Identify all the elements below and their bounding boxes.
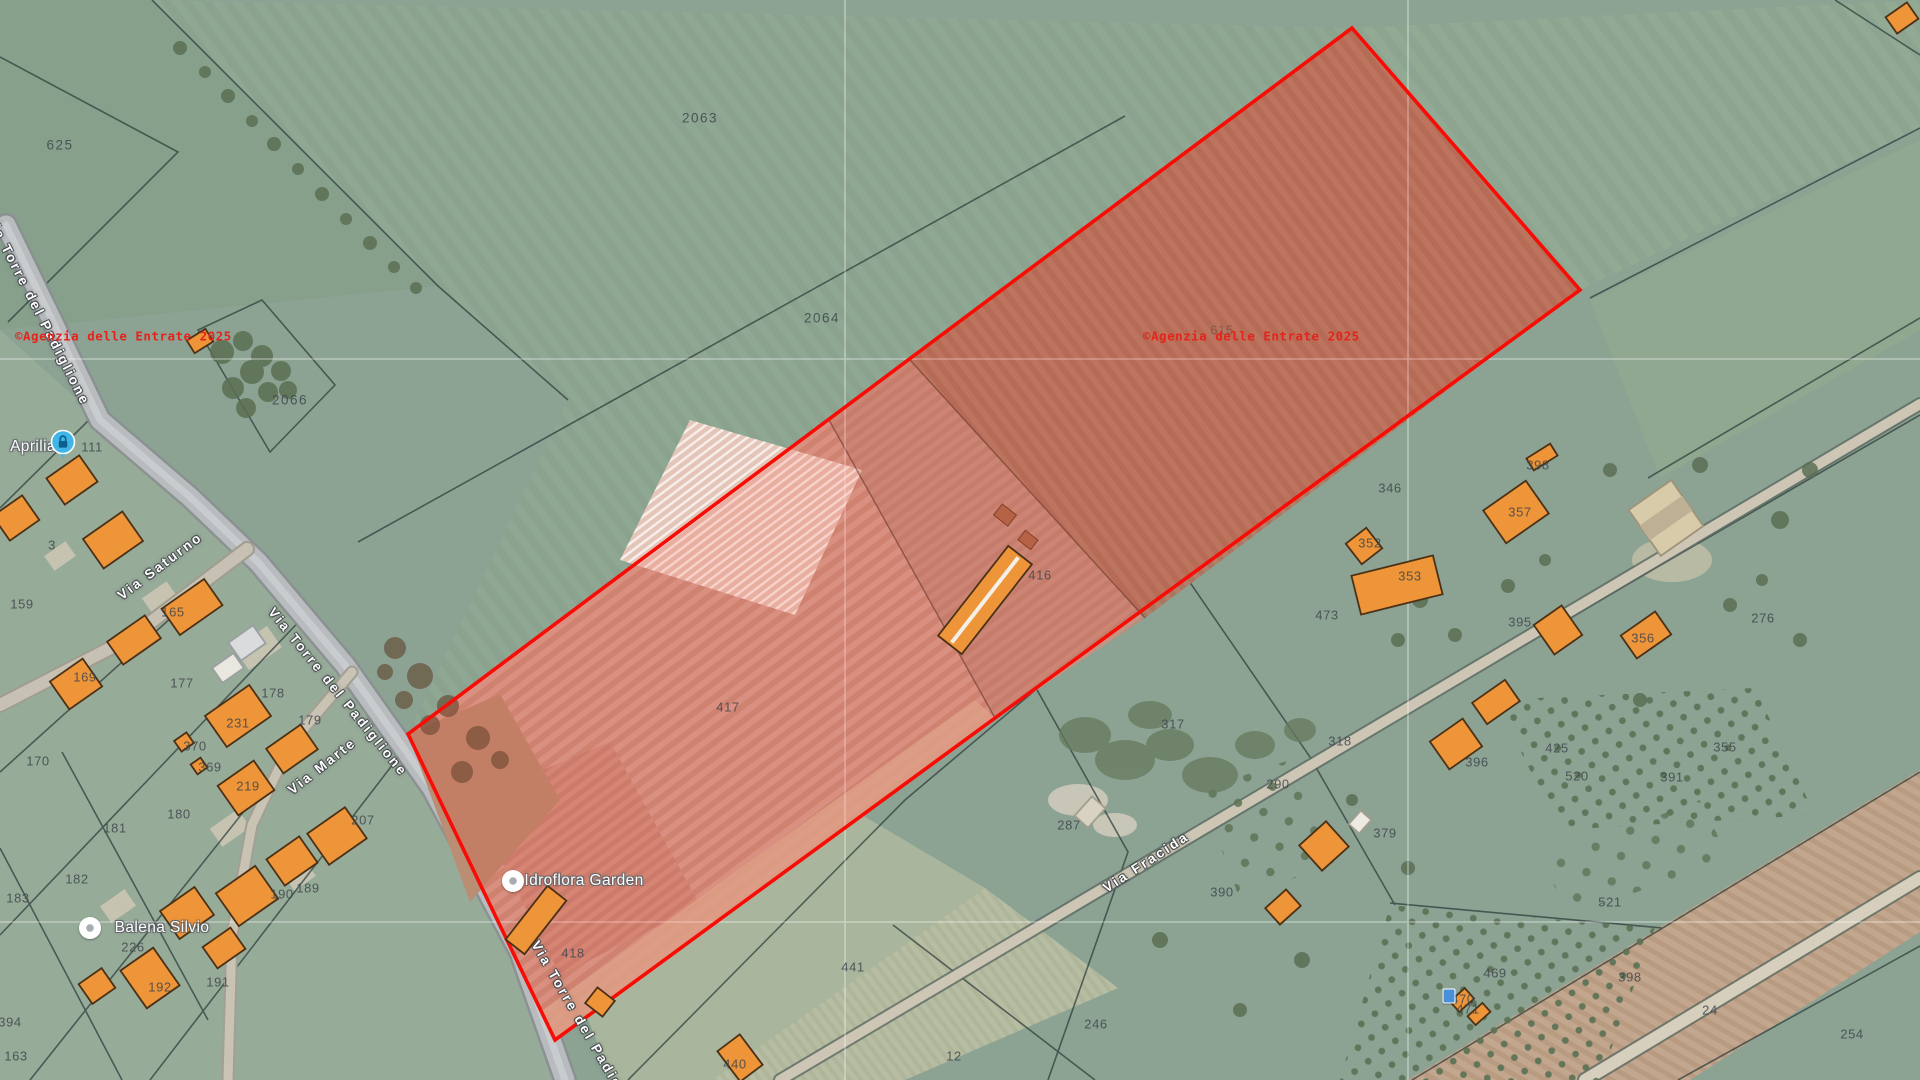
satellite-map-canvas[interactable]: 6252063206420666151113159165169170177178…	[0, 0, 1920, 1080]
copyright-watermark: ©Agenzia delle Entrate 2025	[1143, 329, 1360, 344]
poi-marker[interactable]	[79, 917, 101, 939]
poi-marker-small[interactable]	[1443, 989, 1456, 1004]
lock-icon	[50, 429, 77, 460]
poi-marker[interactable]	[502, 870, 524, 892]
map-base-layer	[0, 0, 1920, 1080]
saved-place-marker[interactable]	[50, 429, 77, 465]
copyright-watermark: ©Agenzia delle Entrate 2025	[15, 329, 232, 344]
